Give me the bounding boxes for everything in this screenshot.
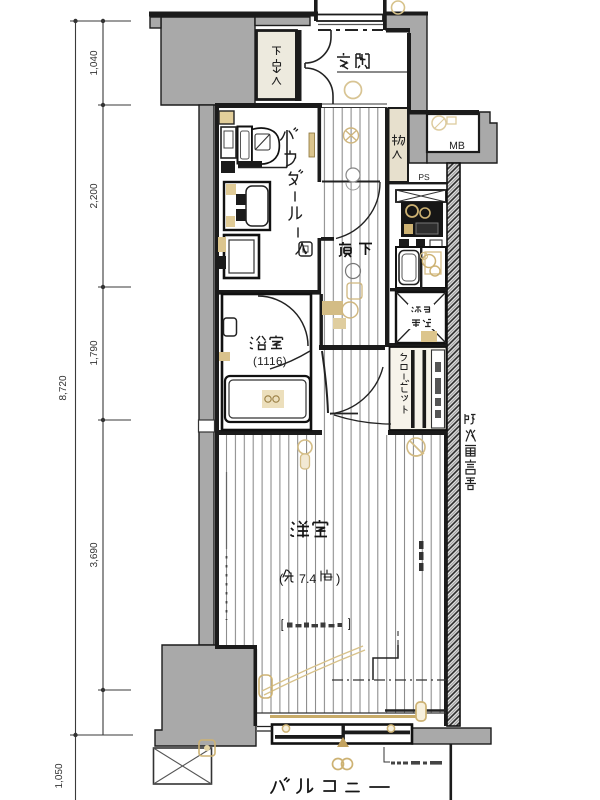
svg-text:MB: MB xyxy=(449,140,465,152)
svg-text:2,200: 2,200 xyxy=(89,183,100,208)
svg-text:(: ( xyxy=(279,571,284,586)
svg-text:8,720: 8,720 xyxy=(58,375,69,400)
svg-text:1,040: 1,040 xyxy=(89,50,100,75)
svg-text:1,790: 1,790 xyxy=(89,340,100,365)
svg-text:(1116): (1116) xyxy=(253,356,287,368)
svg-text:7.4: 7.4 xyxy=(299,572,316,586)
svg-text:3,690: 3,690 xyxy=(89,542,100,567)
svg-text:): ) xyxy=(336,571,340,586)
svg-text:1,050: 1,050 xyxy=(54,763,65,788)
svg-text:PS: PS xyxy=(418,172,430,182)
